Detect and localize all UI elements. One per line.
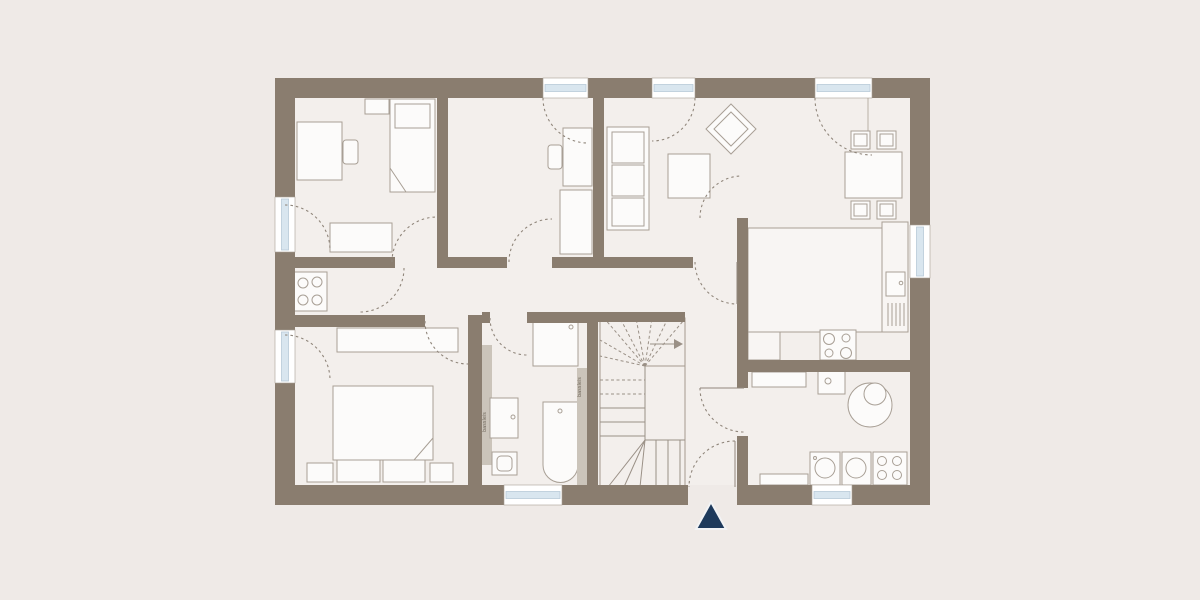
ext-wall-left-1 [275, 78, 295, 197]
ext-wall-bottom-3 [737, 485, 812, 505]
bed-cushion [337, 460, 380, 482]
int-wall-bed3-bath [468, 315, 482, 485]
window-left-room1-glass [282, 199, 289, 250]
nightstand [365, 99, 389, 114]
sofa-cushion [612, 132, 644, 163]
ext-wall-top-1 [275, 78, 543, 98]
entrance-marker [696, 502, 726, 529]
floor-plan-svg: bassleisbassleis [0, 0, 1200, 600]
utility-shelf [752, 372, 806, 387]
hall-niche-unit [294, 272, 327, 311]
window-top-room2-glass [545, 85, 586, 92]
int-wall-bath-top-left [482, 312, 490, 323]
ext-wall-left-3 [275, 383, 295, 505]
ext-wall-left-2 [275, 252, 295, 330]
sofa-cushion [612, 165, 644, 196]
prewall-label-right: bassleis [577, 377, 583, 397]
desk-chair [343, 140, 358, 164]
bed-cushion [383, 460, 425, 482]
ext-wall-top-3 [695, 78, 815, 98]
single-bed-pillow [395, 104, 430, 128]
ext-wall-bottom-1 [275, 485, 504, 505]
window-left-bed3-glass [282, 332, 289, 381]
int-wall-kitchen-bottom [737, 360, 910, 372]
int-wall-room2-living [593, 98, 604, 257]
window-right-kitchen-glass [917, 227, 924, 276]
bathtub [543, 402, 578, 483]
study-cabinet [560, 190, 592, 254]
coffee-table [668, 154, 710, 198]
bath-sink [490, 398, 518, 438]
sofa-cushion [612, 198, 644, 226]
int-wall-hall-b3 [552, 257, 693, 268]
desk [297, 122, 342, 180]
stair-landing [645, 366, 685, 440]
double-bed [333, 386, 433, 460]
window-bottom-utility-glass [814, 492, 850, 499]
int-wall-vestibule-utility-lower [737, 436, 748, 485]
int-wall-kitchen-left [737, 218, 748, 363]
int-wall-bed3-top [295, 315, 425, 327]
utility-control-box [818, 370, 845, 394]
dining-table [845, 152, 902, 198]
int-wall-stair-top [598, 312, 685, 322]
kitchen-counter-main [748, 228, 882, 332]
bed-cushion [430, 463, 453, 482]
prewall-label-left: bassleis [482, 412, 488, 432]
laundry-sink [873, 452, 907, 485]
window-top-dining-glass [817, 85, 870, 92]
window-top-living-glass [654, 85, 693, 92]
study-chair [548, 145, 562, 169]
sideboard [330, 223, 392, 252]
ext-wall-right-1 [910, 78, 930, 225]
int-wall-hall-b1 [295, 257, 395, 268]
wardrobe [337, 328, 458, 352]
kitchen-counter-left [748, 332, 780, 360]
ext-wall-right-2 [910, 278, 930, 505]
utility-shelf-bottom [760, 474, 808, 485]
int-wall-stair-left [587, 312, 598, 485]
floor-plan: bassleisbassleis [0, 0, 1200, 600]
toilet [492, 452, 517, 475]
window-bottom-bath-glass [506, 492, 560, 499]
shower [533, 320, 578, 366]
int-wall-room1-room2 [437, 98, 448, 268]
study-desk [563, 128, 592, 186]
int-wall-hall-b2 [437, 257, 507, 268]
bed-cushion [307, 463, 333, 482]
ext-wall-top-2 [588, 78, 652, 98]
boiler-inner [864, 383, 886, 405]
int-wall-vestibule-utility-upper [737, 372, 748, 388]
ext-wall-bottom-2 [562, 485, 688, 505]
